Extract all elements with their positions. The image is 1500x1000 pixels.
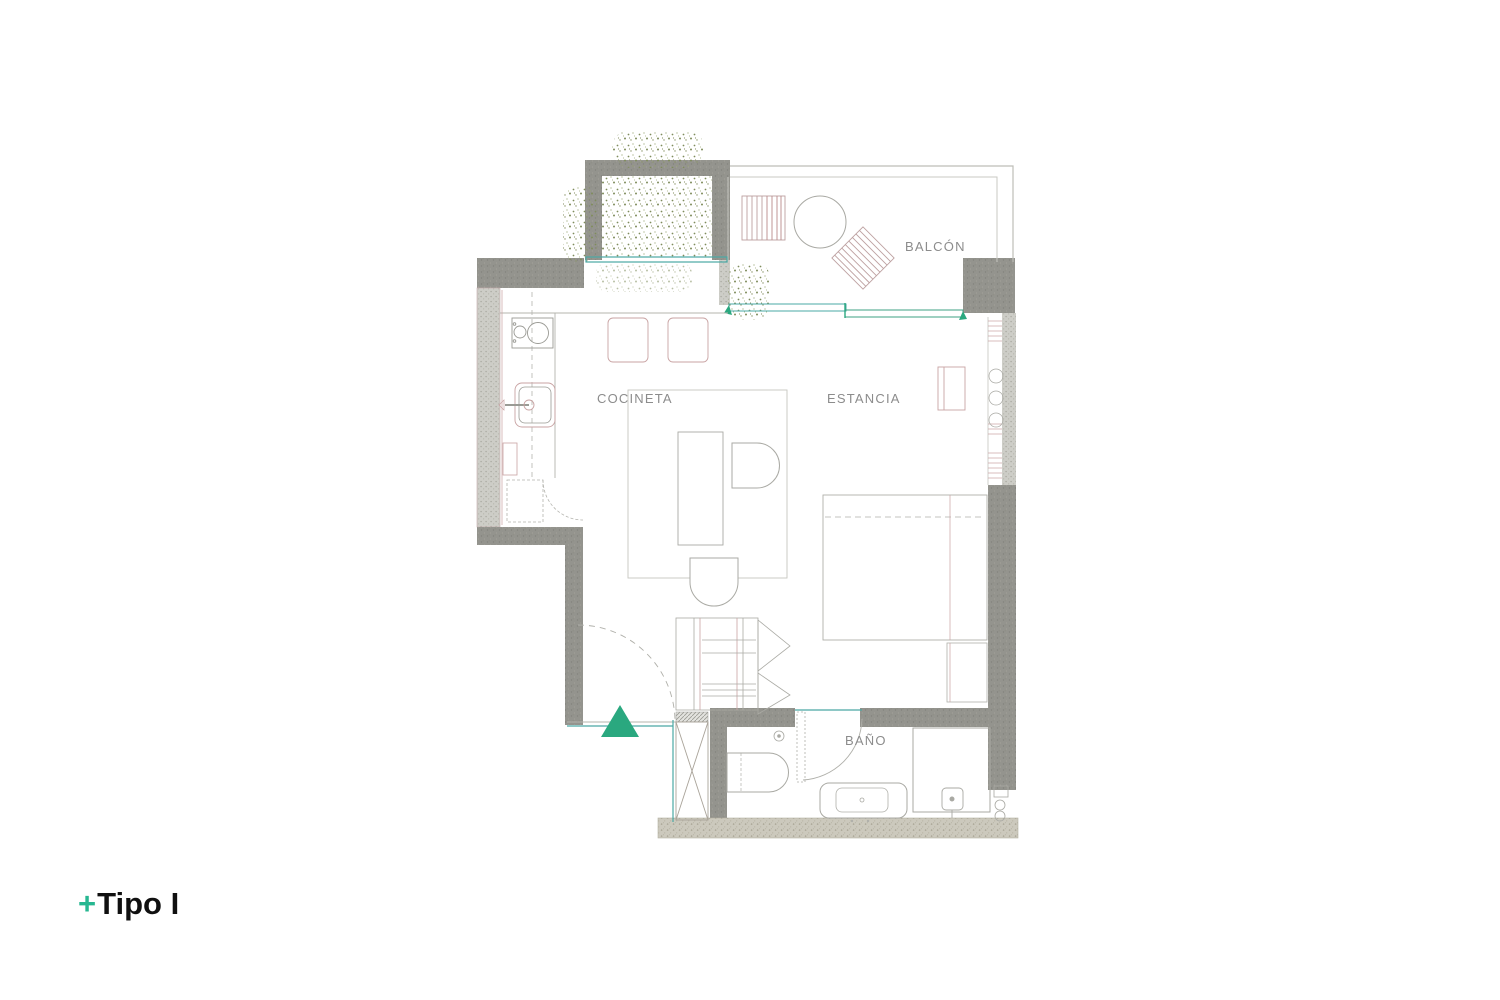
dining-furniture bbox=[608, 318, 1003, 606]
bath-accessories bbox=[994, 786, 1008, 821]
dining-table bbox=[678, 432, 723, 545]
wall-bath-left bbox=[710, 722, 727, 822]
tv-console bbox=[938, 367, 965, 410]
floor-plan: BALCÓN COCINETA ESTANCIA BAÑO bbox=[0, 0, 1500, 1000]
wardrobe bbox=[676, 618, 790, 714]
vent-strip bbox=[676, 712, 708, 722]
pantry-cabinet bbox=[507, 480, 543, 522]
wardrobe-fold-door-bottom bbox=[758, 673, 790, 714]
room-label-bano: BAÑO bbox=[845, 733, 887, 748]
wall-bath-top-right bbox=[860, 708, 990, 727]
unit-type-title: +Tipo I bbox=[78, 886, 179, 922]
wall-top-left-block bbox=[477, 258, 584, 288]
entrance bbox=[578, 625, 675, 737]
wall-balcony-right-block bbox=[963, 258, 1015, 313]
tree-canopy-top bbox=[612, 130, 704, 168]
chair-right bbox=[732, 443, 780, 488]
wall-left-step bbox=[477, 527, 583, 545]
nightstand bbox=[947, 643, 987, 702]
entry-door-arc bbox=[578, 625, 675, 722]
entry-triangle bbox=[601, 705, 639, 737]
patio-table bbox=[794, 196, 846, 248]
kitchen-fixtures bbox=[499, 290, 583, 525]
walls bbox=[477, 160, 1018, 838]
planter-greenery bbox=[563, 130, 770, 320]
wall-estancia-right bbox=[1002, 313, 1016, 485]
wall-bedroom-right bbox=[988, 485, 1016, 710]
room-label-balcon: BALCÓN bbox=[905, 239, 966, 254]
chair-bottom bbox=[690, 558, 738, 606]
pantry-door-arc bbox=[543, 480, 583, 520]
room-label-estancia: ESTANCIA bbox=[827, 391, 901, 406]
shower bbox=[913, 728, 990, 818]
wall-entry-vertical bbox=[565, 545, 583, 725]
room-label-cocineta: COCINETA bbox=[597, 391, 673, 406]
vanity-sink bbox=[820, 783, 907, 822]
wardrobe-fold-door-top bbox=[758, 620, 790, 671]
sprinkler bbox=[774, 731, 784, 741]
kitchen-sink bbox=[499, 383, 555, 427]
bathtub bbox=[727, 753, 789, 792]
pouf-2 bbox=[668, 318, 708, 362]
pouf-1 bbox=[608, 318, 648, 362]
wall-bath-right bbox=[988, 708, 1016, 790]
wall-bath-bottom bbox=[658, 818, 1018, 838]
patio-chair bbox=[742, 196, 785, 240]
stove bbox=[512, 318, 553, 348]
tree-canopy-bottom bbox=[596, 262, 692, 292]
unit-type-name: Tipo I bbox=[97, 886, 179, 921]
kitchen-cabinet bbox=[503, 443, 517, 475]
planter-wall-right bbox=[712, 160, 730, 260]
planter-tree bbox=[602, 176, 712, 258]
wall-left-exterior bbox=[477, 288, 500, 527]
shelf-unit bbox=[988, 321, 1003, 478]
bed-area bbox=[823, 495, 987, 702]
floor-plan-drawing: BALCÓN COCINETA ESTANCIA BAÑO bbox=[0, 0, 1500, 1000]
sliding-door-panel-right bbox=[845, 310, 963, 317]
plus-icon: + bbox=[78, 886, 96, 921]
duct-shaft bbox=[676, 722, 708, 820]
tree-canopy-left bbox=[563, 186, 597, 262]
